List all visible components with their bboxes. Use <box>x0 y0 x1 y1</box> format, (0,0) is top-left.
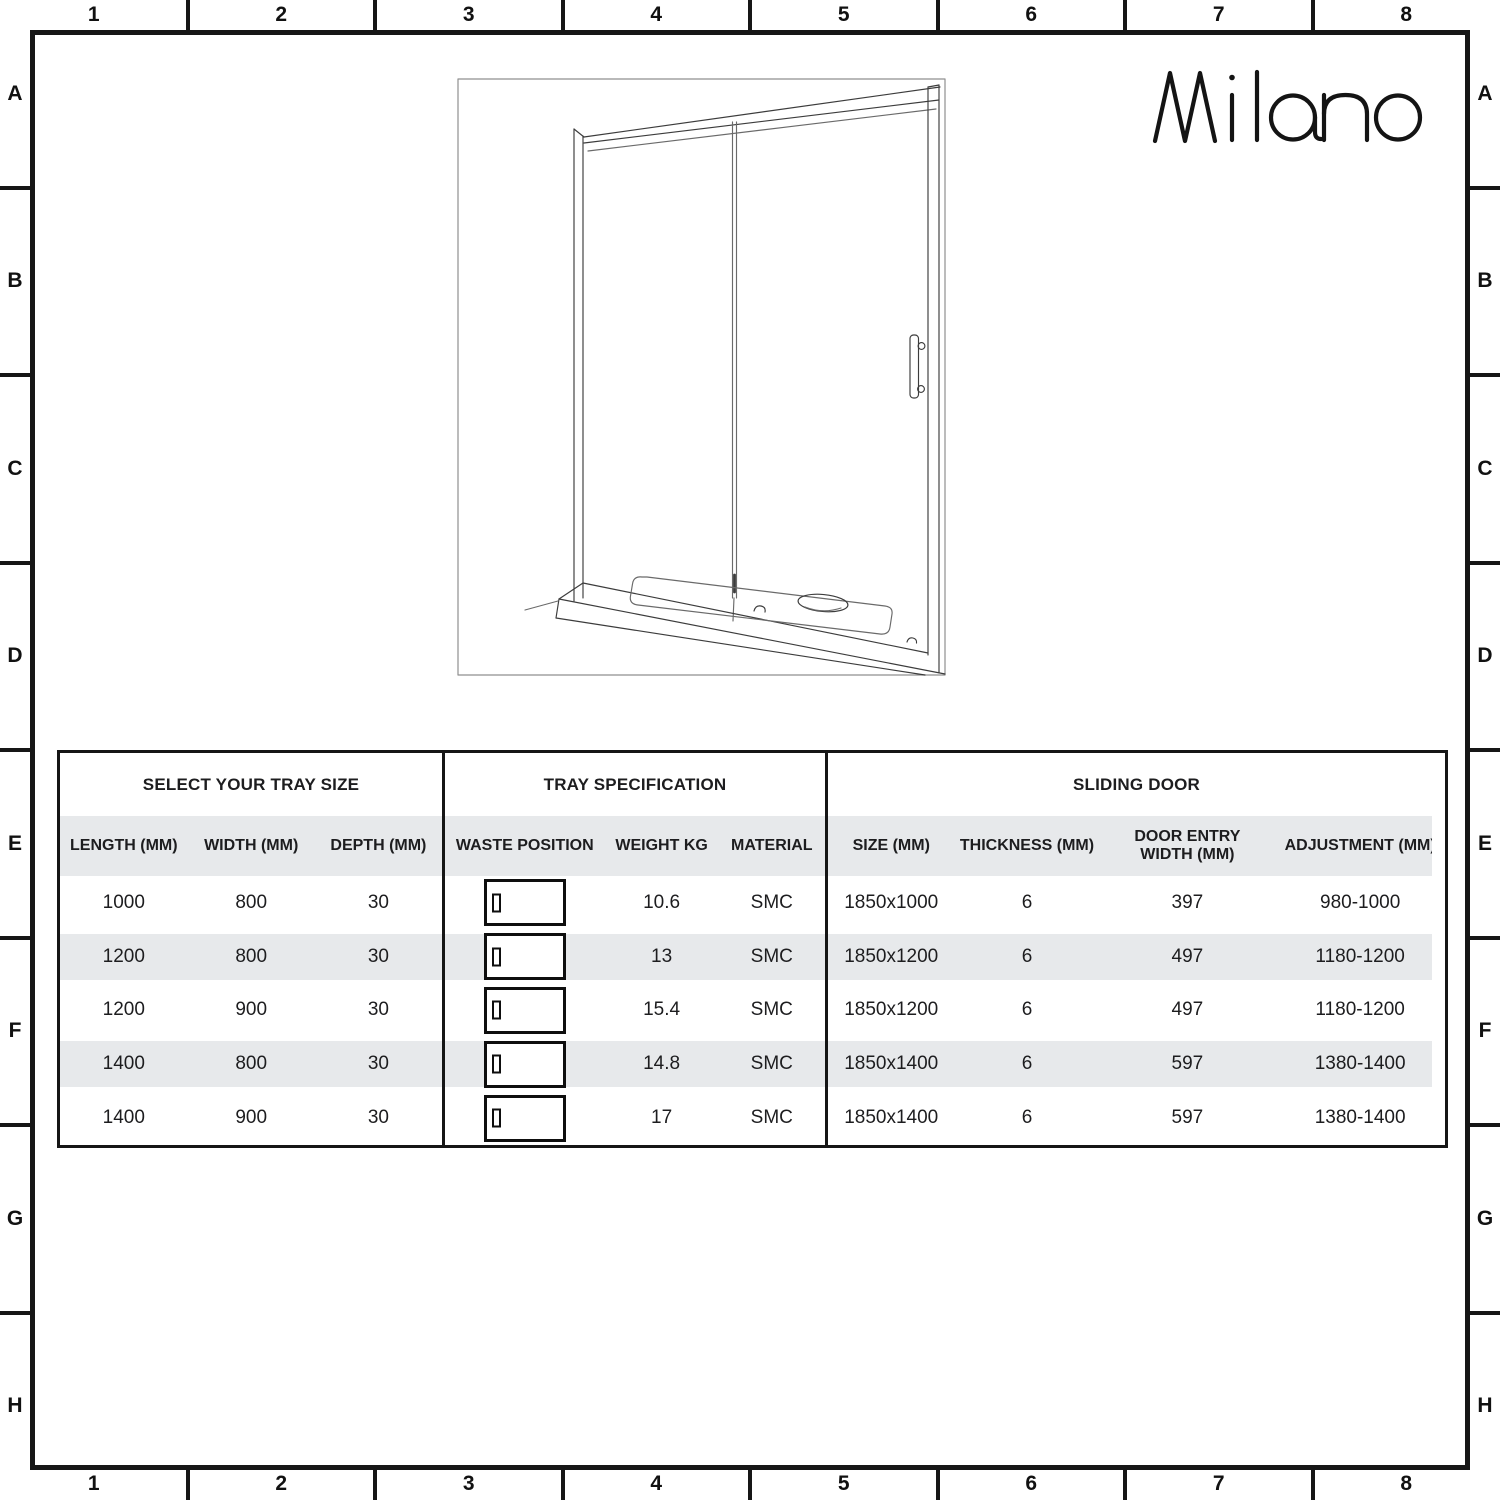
table-cell: 14.8 <box>605 1037 719 1091</box>
grid-tick <box>0 748 30 752</box>
table-cell: 1000 <box>60 876 188 930</box>
table-cell: 6 <box>954 876 1099 930</box>
table-cell: 30 <box>315 1091 442 1145</box>
grid-label-left-C: C <box>0 375 30 563</box>
grid-tick <box>561 1470 565 1500</box>
table-cell: 30 <box>315 930 442 984</box>
grid-tick <box>0 561 30 565</box>
table-cell: 1400 <box>60 1091 188 1145</box>
grid-label-left-F: F <box>0 938 30 1126</box>
grid-label-left-D: D <box>0 563 30 751</box>
grid-label-left-G: G <box>0 1125 30 1313</box>
grid-tick <box>1470 373 1500 377</box>
grid-label-top-7: 7 <box>1125 0 1313 30</box>
table-cell: SMC <box>719 1037 825 1091</box>
grid-label-bottom-5: 5 <box>750 1469 938 1499</box>
grid-tick <box>186 0 190 30</box>
tray-waste-position-icon <box>484 1041 566 1088</box>
grid-tick <box>1470 186 1500 190</box>
grid-tick <box>0 186 30 190</box>
table-row: 1850x140065971380-1400 <box>828 1091 1445 1145</box>
grid-tick <box>0 373 30 377</box>
table-cell: 800 <box>188 876 315 930</box>
spec-sheet-page: SELECT YOUR TRAY SIZELENGTH (MM)WIDTH (M… <box>0 0 1500 1500</box>
waste-outlet-mark <box>492 1001 501 1020</box>
grid-tick <box>1123 0 1127 30</box>
table-row: 10.6SMC <box>445 876 825 930</box>
table-cell: SMC <box>719 930 825 984</box>
grid-label-top-3: 3 <box>375 0 563 30</box>
column-header-label: WASTE POSITION <box>456 837 594 855</box>
tray-waste-position-icon <box>484 933 566 980</box>
table-row: 140090030 <box>60 1091 442 1145</box>
grid-label-left-H: H <box>0 1313 30 1500</box>
waste-outlet-mark <box>492 1109 501 1128</box>
table-cell: 6 <box>954 984 1099 1038</box>
table-cell: SMC <box>719 984 825 1038</box>
column-header: DEPTH (MM) <box>315 816 442 876</box>
column-header-label: DOOR ENTRY WIDTH (MM) <box>1126 828 1248 865</box>
table-cell <box>445 930 605 984</box>
table-cell: 1850x1400 <box>828 1091 954 1145</box>
grid-label-top-2: 2 <box>188 0 376 30</box>
grid-tick <box>0 936 30 940</box>
table-section-2: TRAY SPECIFICATIONWASTE POSITIONWEIGHT K… <box>442 753 825 1145</box>
column-header: SIZE (MM) <box>828 816 954 876</box>
waste-outlet-mark <box>492 893 501 912</box>
grid-tick <box>0 1311 30 1315</box>
table-cell: 10.6 <box>605 876 719 930</box>
tray-waste-position-icon <box>484 1095 566 1142</box>
column-header: THICKNESS (MM) <box>954 816 1099 876</box>
section-title: TRAY SPECIFICATION <box>445 753 825 816</box>
table-row: 1850x120064971180-1200 <box>828 984 1445 1038</box>
grid-tick <box>936 1470 940 1500</box>
grid-label-bottom-4: 4 <box>563 1469 751 1499</box>
table-cell: SMC <box>719 876 825 930</box>
column-header: WASTE POSITION <box>445 816 605 876</box>
column-header: LENGTH (MM) <box>60 816 188 876</box>
table-cell: 17 <box>605 1091 719 1145</box>
grid-label-top-5: 5 <box>750 0 938 30</box>
column-header: WEIGHT KG <box>605 816 719 876</box>
grid-tick <box>186 1470 190 1500</box>
column-header-label: SIZE (MM) <box>853 837 930 855</box>
table-row: 120080030 <box>60 930 442 984</box>
column-header-label: WIDTH (MM) <box>204 837 298 855</box>
column-header-label: THICKNESS (MM) <box>960 837 1094 855</box>
table-cell: 30 <box>315 984 442 1038</box>
waste-outlet-mark <box>492 1055 501 1074</box>
column-header-row: SIZE (MM)THICKNESS (MM)DOOR ENTRY WIDTH … <box>828 816 1445 876</box>
table-cell: 1380-1400 <box>1275 1037 1445 1091</box>
table-row: 17SMC <box>445 1091 825 1145</box>
illustration-box <box>458 79 945 675</box>
column-header-label: ADJUSTMENT (MM) <box>1285 837 1436 855</box>
table-cell: 6 <box>954 930 1099 984</box>
grid-label-right-A: A <box>1470 0 1500 188</box>
grid-label-bottom-7: 7 <box>1125 1469 1313 1499</box>
grid-label-right-H: H <box>1470 1313 1500 1500</box>
table-cell: 30 <box>315 1037 442 1091</box>
table-row: 13SMC <box>445 930 825 984</box>
grid-label-right-E: E <box>1470 750 1500 938</box>
grid-label-right-F: F <box>1470 938 1500 1126</box>
grid-tick <box>1123 1470 1127 1500</box>
grid-label-left-B: B <box>0 188 30 376</box>
table-cell: 13 <box>605 930 719 984</box>
table-cell: 15.4 <box>605 984 719 1038</box>
grid-label-bottom-6: 6 <box>938 1469 1126 1499</box>
column-header-label: WEIGHT KG <box>615 837 707 855</box>
table-cell: 1200 <box>60 984 188 1038</box>
table-row: 1850x10006397980-1000 <box>828 876 1445 930</box>
grid-label-right-C: C <box>1470 375 1500 563</box>
grid-tick <box>1470 936 1500 940</box>
sliding-door-shower-illustration <box>455 75 950 680</box>
table-section-1: SELECT YOUR TRAY SIZELENGTH (MM)WIDTH (M… <box>60 753 442 1145</box>
grid-tick <box>1311 1470 1315 1500</box>
tray-waste-position-icon <box>484 879 566 926</box>
grid-label-bottom-3: 3 <box>375 1469 563 1499</box>
table-cell: 900 <box>188 1091 315 1145</box>
grid-tick <box>1470 748 1500 752</box>
table-cell: 497 <box>1099 930 1275 984</box>
grid-tick <box>1470 1311 1500 1315</box>
table-row: 140080030 <box>60 1037 442 1091</box>
grid-label-right-D: D <box>1470 563 1500 751</box>
grid-label-top-4: 4 <box>563 0 751 30</box>
table-cell: 597 <box>1099 1091 1275 1145</box>
grid-tick <box>373 0 377 30</box>
grid-label-top-6: 6 <box>938 0 1126 30</box>
grid-tick <box>0 1123 30 1127</box>
column-header: DOOR ENTRY WIDTH (MM) <box>1099 816 1275 876</box>
column-header: MATERIAL <box>719 816 825 876</box>
table-cell <box>445 876 605 930</box>
table-cell: 1180-1200 <box>1275 984 1445 1038</box>
table-right-inset <box>1432 753 1445 1145</box>
table-row: 14.8SMC <box>445 1037 825 1091</box>
grid-tick <box>1311 0 1315 30</box>
table-cell: 497 <box>1099 984 1275 1038</box>
grid-tick <box>748 1470 752 1500</box>
table-cell: 1850x1000 <box>828 876 954 930</box>
column-header-label: LENGTH (MM) <box>70 837 178 855</box>
grid-label-right-G: G <box>1470 1125 1500 1313</box>
specification-table: SELECT YOUR TRAY SIZELENGTH (MM)WIDTH (M… <box>57 750 1448 1148</box>
table-row: 1850x120064971180-1200 <box>828 930 1445 984</box>
table-cell: 800 <box>188 930 315 984</box>
grid-tick <box>748 0 752 30</box>
table-row: 100080030 <box>60 876 442 930</box>
table-cell: 1850x1200 <box>828 930 954 984</box>
table-section-3: SLIDING DOORSIZE (MM)THICKNESS (MM)DOOR … <box>825 753 1445 1145</box>
waste-outlet-mark <box>492 947 501 966</box>
table-cell: 597 <box>1099 1037 1275 1091</box>
grid-label-right-B: B <box>1470 188 1500 376</box>
grid-label-left-A: A <box>0 0 30 188</box>
table-row: 120090030 <box>60 984 442 1038</box>
table-cell: 1850x1400 <box>828 1037 954 1091</box>
column-header-row: WASTE POSITIONWEIGHT KGMATERIAL <box>445 816 825 876</box>
table-cell <box>445 1037 605 1091</box>
milano-logo <box>1152 68 1424 148</box>
grid-tick <box>373 1470 377 1500</box>
column-header-row: LENGTH (MM)WIDTH (MM)DEPTH (MM) <box>60 816 442 876</box>
table-cell: 1380-1400 <box>1275 1091 1445 1145</box>
table-cell: 30 <box>315 876 442 930</box>
table-cell: 397 <box>1099 876 1275 930</box>
grid-tick <box>1470 1123 1500 1127</box>
tray-waste-position-icon <box>484 987 566 1034</box>
column-header: WIDTH (MM) <box>188 816 315 876</box>
table-cell: SMC <box>719 1091 825 1145</box>
table-cell: 980-1000 <box>1275 876 1445 930</box>
column-header-label: DEPTH (MM) <box>330 837 426 855</box>
section-title: SLIDING DOOR <box>828 753 1445 816</box>
table-row: 1850x140065971380-1400 <box>828 1037 1445 1091</box>
table-cell: 1400 <box>60 1037 188 1091</box>
grid-tick <box>1470 561 1500 565</box>
table-cell: 6 <box>954 1091 1099 1145</box>
grid-label-left-E: E <box>0 750 30 938</box>
table-cell: 900 <box>188 984 315 1038</box>
table-cell <box>445 984 605 1038</box>
column-header-label: MATERIAL <box>731 837 812 855</box>
column-header: ADJUSTMENT (MM) <box>1275 816 1445 876</box>
table-cell: 1200 <box>60 930 188 984</box>
table-cell: 6 <box>954 1037 1099 1091</box>
table-cell: 1850x1200 <box>828 984 954 1038</box>
table-row: 15.4SMC <box>445 984 825 1038</box>
table-cell: 800 <box>188 1037 315 1091</box>
table-cell: 1180-1200 <box>1275 930 1445 984</box>
section-title: SELECT YOUR TRAY SIZE <box>60 753 442 816</box>
grid-tick <box>561 0 565 30</box>
table-cell <box>445 1091 605 1145</box>
grid-tick <box>936 0 940 30</box>
grid-label-bottom-2: 2 <box>188 1469 376 1499</box>
